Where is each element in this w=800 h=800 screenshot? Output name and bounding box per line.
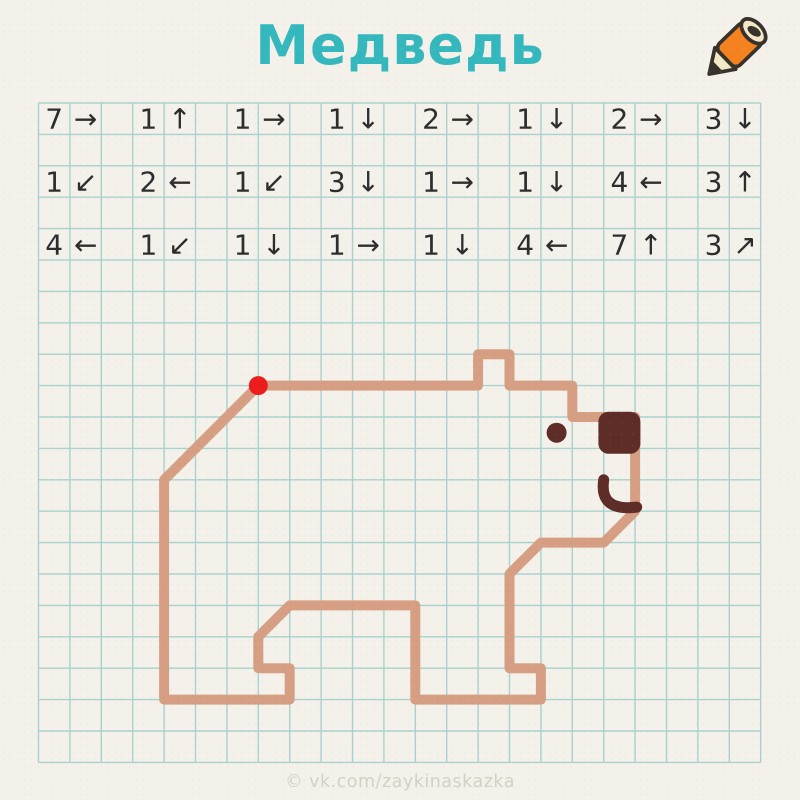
instruction-arrow: → — [451, 103, 474, 136]
instruction-arrow: ← — [74, 228, 97, 261]
instruction-number: 1 — [516, 166, 534, 199]
instruction-arrow: ↙ — [74, 166, 97, 199]
instruction-arrow: ↑ — [639, 228, 662, 261]
instruction-arrow: ↙ — [262, 166, 285, 199]
instruction-arrow: ↓ — [356, 166, 379, 199]
instruction-arrow: ↓ — [733, 103, 756, 136]
instruction-arrow: ↑ — [168, 103, 191, 136]
bear-eye — [547, 423, 567, 443]
grid-lines — [39, 103, 761, 762]
instruction-arrow: ↙ — [168, 228, 191, 261]
worksheet-page: Медведь 7→1↑1→1↓2→1↓2→3↓1↙2←1↙3↓1→1↓4←3↑… — [0, 0, 800, 800]
instruction-number: 3 — [705, 166, 723, 199]
instruction-number: 4 — [45, 228, 63, 261]
instruction-number: 7 — [610, 228, 628, 261]
instruction-arrow: ↑ — [733, 166, 756, 199]
instruction-number: 4 — [610, 166, 628, 199]
instruction-arrow: → — [451, 166, 474, 199]
instruction-number: 2 — [610, 103, 628, 136]
bear-outline-path — [164, 354, 635, 699]
instruction-arrow: ↓ — [262, 228, 285, 261]
instruction-arrow: ↓ — [545, 166, 568, 199]
instruction-number: 3 — [705, 228, 723, 261]
instruction-number: 1 — [328, 228, 346, 261]
instruction-arrow: → — [262, 103, 285, 136]
instruction-number: 2 — [422, 103, 440, 136]
instruction-number: 3 — [328, 166, 346, 199]
instruction-number: 1 — [234, 103, 252, 136]
instruction-number: 7 — [45, 103, 63, 136]
bear-nose — [598, 412, 640, 454]
instruction-arrow: ↗ — [733, 228, 756, 261]
instruction-number: 1 — [139, 103, 157, 136]
instruction-number: 1 — [516, 103, 534, 136]
instruction-number: 3 — [705, 103, 723, 136]
instruction-arrow: ← — [545, 228, 568, 261]
start-dot — [249, 376, 268, 395]
page-title: Медведь — [0, 14, 800, 77]
instruction-arrow: → — [639, 103, 662, 136]
instruction-number: 1 — [45, 166, 63, 199]
instruction-number: 2 — [139, 166, 157, 199]
instruction-arrow: → — [74, 103, 97, 136]
instruction-number: 1 — [328, 103, 346, 136]
instruction-arrow: ↓ — [356, 103, 379, 136]
watermark: © vk.com/zaykinaskazka — [285, 772, 515, 792]
instruction-number: 1 — [139, 228, 157, 261]
header: Медведь — [0, 0, 800, 100]
instruction-arrow: ← — [168, 166, 191, 199]
instruction-number: 4 — [516, 228, 534, 261]
pencil-icon — [690, 6, 774, 98]
instruction-arrow: ↓ — [545, 103, 568, 136]
instruction-rows: 7→1↑1→1↓2→1↓2→3↓1↙2←1↙3↓1→1↓4←3↑4←1↙1↓1→… — [45, 103, 756, 262]
instruction-number: 1 — [234, 166, 252, 199]
instruction-number: 1 — [422, 228, 440, 261]
instruction-number: 1 — [422, 166, 440, 199]
footer: © vk.com/zaykinaskazka — [0, 772, 800, 792]
instruction-arrow: ↓ — [451, 228, 474, 261]
instruction-arrow: ← — [639, 166, 662, 199]
instruction-arrow: → — [356, 228, 379, 261]
dictation-board: 7→1↑1→1↓2→1↓2→3↓1↙2←1↙3↓1→1↓4←3↑4←1↙1↓1→… — [0, 0, 800, 800]
instruction-number: 1 — [234, 228, 252, 261]
